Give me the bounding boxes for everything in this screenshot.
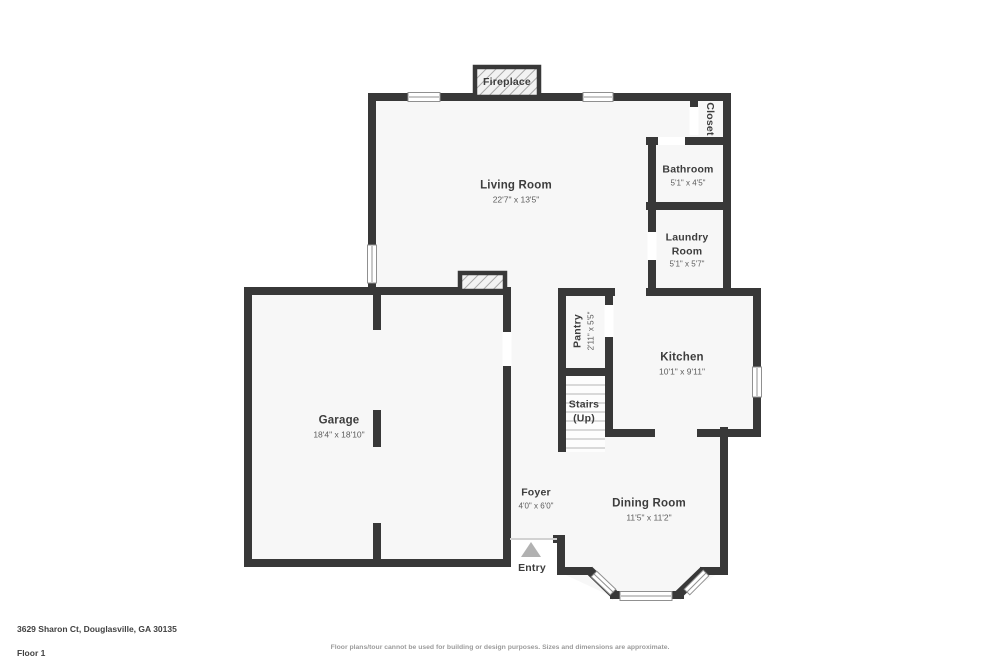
room-dims: 5'1" x 5'7": [655, 260, 719, 270]
room-label-garage: Garage 18'4" x 18'10": [313, 414, 364, 441]
room-name: Stairs: [569, 398, 599, 412]
room-name: Bathroom: [662, 163, 713, 177]
disclaimer-text: Floor plans/tour cannot be used for buil…: [0, 644, 1000, 651]
room-name: Pantry: [571, 312, 585, 351]
room-name: Fireplace: [483, 76, 531, 90]
room-dims: 18'4" x 18'10": [313, 429, 364, 440]
room-name: Closet: [702, 102, 716, 135]
room-name: Kitchen: [659, 351, 705, 366]
address-text: 3629 Sharon Ct, Douglasville, GA 30135: [17, 624, 177, 634]
room-sub: (Up): [569, 412, 599, 426]
room-label-pantry: Pantry 2'11" x 5'5": [571, 312, 596, 351]
room-name: Living Room: [480, 179, 552, 194]
entry-arrow-icon: [521, 542, 541, 557]
room-label-laundry-room: Laundry Room 5'1" x 5'7": [655, 232, 719, 271]
room-dims: 22'7" x 13'5": [480, 194, 552, 205]
room-label-fireplace: Fireplace: [483, 76, 531, 90]
room-dims: 5'1" x 4'5": [662, 178, 713, 188]
room-dims: 10'1" x 9'11": [659, 366, 705, 377]
floor-plan-canvas: Living Room 22'7" x 13'5" Fireplace Clos…: [0, 0, 1000, 667]
room-dims: 2'11" x 5'5": [586, 312, 596, 351]
room-label-foyer: Foyer 4'0" x 6'0": [519, 486, 554, 511]
floor-plan-drawing: [0, 0, 1000, 667]
room-label-closet: Closet: [702, 102, 716, 135]
room-label-bathroom: Bathroom 5'1" x 4'5": [662, 163, 713, 188]
room-dims: 11'5" x 11'2": [612, 512, 686, 523]
room-dims: 4'0" x 6'0": [519, 501, 554, 511]
room-name: Entry: [518, 562, 546, 576]
room-name: Foyer: [519, 486, 554, 500]
room-label-living-room: Living Room 22'7" x 13'5": [480, 179, 552, 206]
room-name: Laundry Room: [655, 232, 719, 259]
room-name: Garage: [313, 414, 364, 429]
room-label-entry: Entry: [518, 562, 546, 576]
room-name: Dining Room: [612, 497, 686, 512]
chimney-icon: [460, 273, 505, 291]
room-label-dining-room: Dining Room 11'5" x 11'2": [612, 497, 686, 524]
room-label-kitchen: Kitchen 10'1" x 9'11": [659, 351, 705, 378]
room-label-stairs: Stairs (Up): [569, 398, 599, 425]
